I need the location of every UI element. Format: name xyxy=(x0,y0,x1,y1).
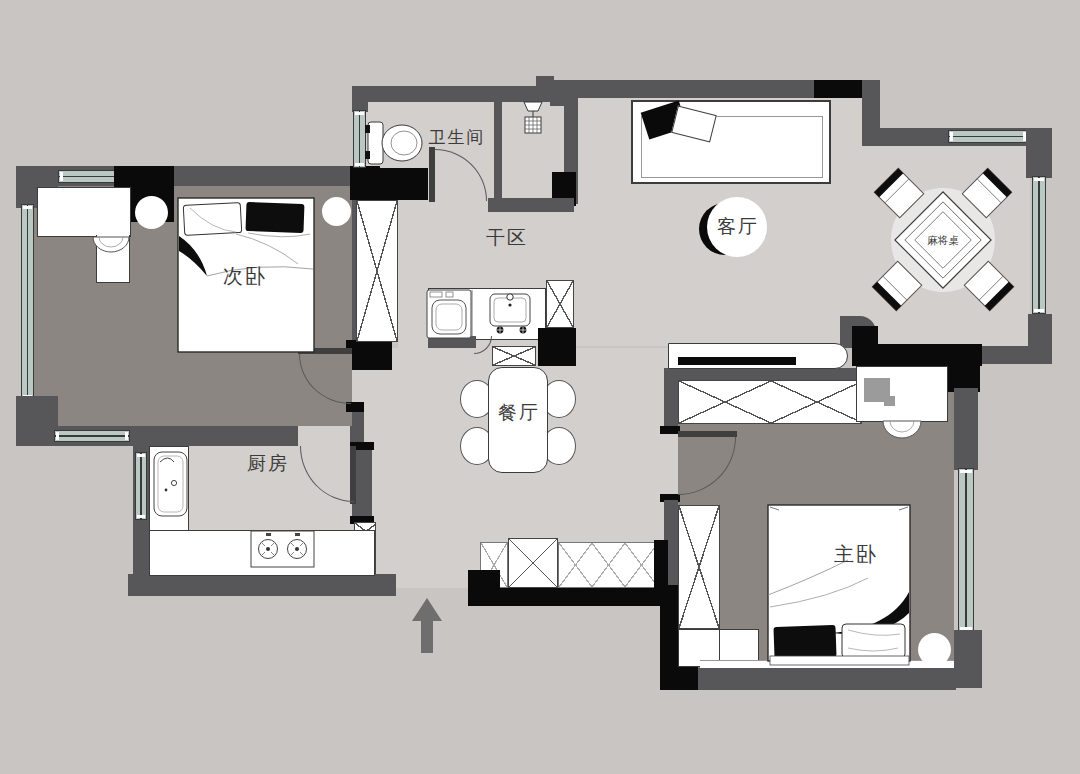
kitchen-counter xyxy=(149,446,189,532)
wall-segment xyxy=(954,630,982,688)
wall-column xyxy=(852,344,982,366)
room-label-dry-area: 干区 xyxy=(486,225,528,251)
wall-segment xyxy=(664,378,678,430)
wall-segment xyxy=(1028,314,1052,364)
nightstand xyxy=(918,633,951,666)
wall-column xyxy=(814,80,866,98)
window xyxy=(948,130,1028,143)
hall-cabinet xyxy=(558,542,656,588)
door-opening xyxy=(298,426,350,446)
storage-cabinet xyxy=(546,280,574,328)
nightstand xyxy=(135,196,168,229)
floor-plan: 卫生间 干区 次卧 厨房 餐厅 客厅 主卧 麻将桌 xyxy=(0,0,1080,774)
window xyxy=(135,452,147,520)
wall-segment xyxy=(428,336,476,348)
storage-cabinet xyxy=(492,346,536,366)
window xyxy=(21,204,34,400)
room-label-bathroom: 卫生间 xyxy=(429,126,486,149)
glass-partition xyxy=(353,110,366,168)
wall-column xyxy=(654,540,668,588)
window-sill xyxy=(700,660,954,668)
room-label-master-bedroom: 主卧 xyxy=(834,541,878,568)
window xyxy=(54,430,130,442)
north-arrow-icon xyxy=(412,598,442,653)
wall-segment xyxy=(128,574,396,596)
room-label-living: 客厅 xyxy=(717,214,759,240)
room-label-kitchen: 厨房 xyxy=(247,451,289,477)
desk xyxy=(96,235,130,283)
tv xyxy=(678,357,796,365)
nightstand xyxy=(322,197,351,226)
window xyxy=(958,468,974,632)
wall-column xyxy=(350,168,428,200)
wall-segment xyxy=(550,96,574,106)
wall-column xyxy=(852,326,878,346)
shower-partition xyxy=(494,100,502,204)
hall-wardrobe xyxy=(356,200,398,342)
laundry-counter xyxy=(428,288,546,340)
room-label-secondary-bedroom: 次卧 xyxy=(223,263,267,290)
wall-segment xyxy=(1026,128,1052,178)
wall-segment xyxy=(488,198,574,212)
master-wardrobe xyxy=(678,380,862,424)
tv-console xyxy=(668,343,848,369)
hall-cabinet xyxy=(508,538,558,588)
wall-segment xyxy=(352,86,540,102)
wall-column xyxy=(352,342,392,370)
desk xyxy=(37,187,131,237)
room-label-dining: 餐厅 xyxy=(498,400,540,426)
wall-segment xyxy=(468,588,668,606)
master-cabinet xyxy=(678,505,720,629)
label-mahjong-table: 麻将桌 xyxy=(927,234,959,248)
wall-segment xyxy=(978,346,1030,364)
door-jamb xyxy=(660,426,680,434)
window xyxy=(1032,176,1046,314)
wall-segment xyxy=(954,388,978,470)
wall-column xyxy=(538,328,576,366)
wall-segment xyxy=(664,368,858,380)
laptop xyxy=(884,396,895,406)
wall-segment xyxy=(698,668,956,690)
kitchen-counter xyxy=(149,530,375,576)
door-opening xyxy=(664,430,678,496)
